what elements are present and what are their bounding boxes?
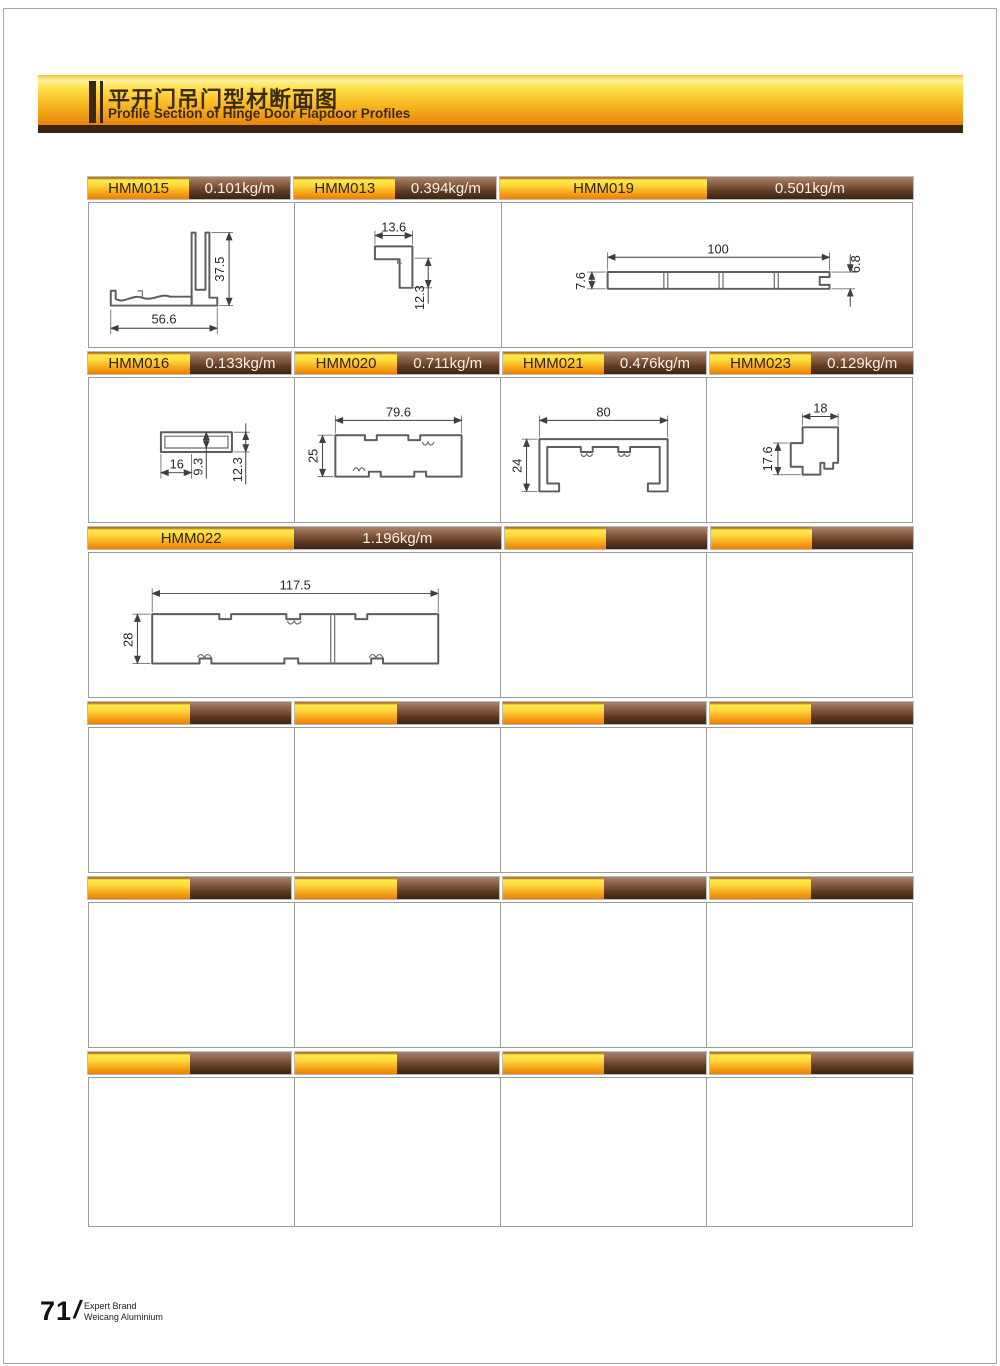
empty-code-segment bbox=[710, 877, 812, 899]
dim-label: 9.3 bbox=[190, 458, 205, 476]
row-1-header: HMM015 0.101kg/m HMM013 0.394kg/m HMM019… bbox=[88, 177, 913, 199]
empty-weight-segment bbox=[604, 1052, 706, 1074]
profile-drawing-hmm022: 117.5 28 bbox=[89, 553, 500, 697]
empty-cell bbox=[500, 552, 707, 698]
brand-line-2: Weicang Aluminium bbox=[84, 1312, 163, 1323]
profile-cell-hmm015: 56.6 37.5 bbox=[88, 202, 295, 348]
empty-header bbox=[88, 702, 291, 724]
profile-drawing-hmm015: 56.6 37.5 bbox=[89, 203, 294, 347]
empty-header bbox=[295, 877, 498, 899]
empty-weight-segment bbox=[397, 877, 499, 899]
profile-weight: 0.129kg/m bbox=[827, 356, 897, 371]
empty-code-segment bbox=[88, 1052, 190, 1074]
empty-header bbox=[88, 877, 291, 899]
profile-header-hmm020: HMM020 0.711kg/m bbox=[295, 352, 498, 374]
empty-header bbox=[295, 1052, 498, 1074]
empty-weight-segment bbox=[190, 702, 292, 724]
brand-line-1: Expert Brand bbox=[84, 1301, 163, 1312]
dim-label: 7.6 bbox=[572, 272, 587, 290]
row-3-header: HMM022 1.196kg/m bbox=[88, 527, 913, 549]
profile-header-hmm019: HMM019 0.501kg/m bbox=[500, 177, 913, 199]
profile-header-hmm023: HMM023 0.129kg/m bbox=[710, 352, 913, 374]
profile-code-segment: HMM015 bbox=[88, 177, 189, 199]
dim-label: 37.5 bbox=[212, 257, 227, 282]
empty-cell bbox=[500, 1077, 707, 1227]
profile-code-segment: HMM020 bbox=[295, 352, 397, 374]
profile-weight: 0.501kg/m bbox=[775, 181, 845, 196]
dim-label: 56.6 bbox=[152, 311, 177, 326]
profile-cell-hmm013: 13.6 12.3 bbox=[294, 202, 501, 348]
accent-bar-thin bbox=[100, 81, 103, 123]
empty-weight-segment bbox=[604, 877, 706, 899]
page-number: 71 bbox=[40, 1298, 72, 1325]
dim-label: 24 bbox=[510, 459, 525, 473]
profile-cell-hmm023: 18 17.6 bbox=[706, 377, 913, 523]
empty-cell bbox=[500, 727, 707, 873]
profile-drawing-hmm016: 16 9.3 12.3 bbox=[89, 378, 294, 522]
profile-header-hmm022: HMM022 1.196kg/m bbox=[88, 527, 501, 549]
profile-drawing-hmm019: 100 7.6 6.8 bbox=[502, 203, 913, 347]
profile-cell-hmm016: 16 9.3 12.3 bbox=[88, 377, 295, 523]
dim-label: 80 bbox=[596, 404, 610, 419]
profile-code-segment: HMM021 bbox=[503, 352, 605, 374]
profile-header-hmm021: HMM021 0.476kg/m bbox=[503, 352, 706, 374]
profile-code: HMM023 bbox=[730, 356, 791, 371]
empty-code-segment bbox=[710, 1052, 812, 1074]
profile-cell-hmm019: 100 7.6 6.8 bbox=[501, 202, 914, 348]
profile-code-segment: HMM019 bbox=[500, 177, 706, 199]
row-6-cells bbox=[88, 1077, 913, 1227]
empty-code-segment bbox=[505, 527, 606, 549]
profile-code: HMM022 bbox=[161, 531, 222, 546]
empty-code-segment bbox=[295, 1052, 397, 1074]
empty-header bbox=[505, 527, 707, 549]
profile-drawing-hmm021: 80 24 bbox=[501, 378, 706, 522]
profile-code: HMM013 bbox=[314, 181, 375, 196]
empty-header bbox=[503, 702, 706, 724]
profile-weight-segment: 0.501kg/m bbox=[707, 177, 913, 199]
empty-header bbox=[88, 1052, 291, 1074]
empty-weight-segment bbox=[604, 702, 706, 724]
empty-weight-segment bbox=[606, 527, 707, 549]
empty-cell bbox=[706, 902, 913, 1048]
empty-cell bbox=[500, 902, 707, 1048]
empty-code-segment bbox=[503, 1052, 605, 1074]
dim-label: 25 bbox=[306, 449, 321, 463]
page-title-english: Profile Section of Hinge Door Flapdoor P… bbox=[108, 106, 410, 121]
profile-code-segment: HMM016 bbox=[88, 352, 190, 374]
profile-cell-hmm020: 79.6 25 bbox=[294, 377, 501, 523]
profile-header-hmm013: HMM013 0.394kg/m bbox=[294, 177, 496, 199]
empty-cell bbox=[294, 727, 501, 873]
profile-header-hmm015: HMM015 0.101kg/m bbox=[88, 177, 290, 199]
row-3-cells: 117.5 28 bbox=[88, 552, 913, 698]
profile-code: HMM021 bbox=[523, 356, 584, 371]
profile-code-segment: HMM022 bbox=[88, 527, 294, 549]
empty-weight-segment bbox=[397, 702, 499, 724]
dim-label: 79.6 bbox=[386, 404, 411, 419]
row-5-cells bbox=[88, 902, 913, 1048]
page-footer: 71 / Expert Brand Weicang Aluminium bbox=[40, 1298, 163, 1325]
profile-weight-segment: 0.129kg/m bbox=[811, 352, 913, 374]
dim-label: 16 bbox=[170, 457, 184, 472]
profile-code-segment: HMM013 bbox=[294, 177, 395, 199]
dim-label: 6.8 bbox=[848, 255, 863, 273]
profile-weight-segment: 0.476kg/m bbox=[604, 352, 706, 374]
empty-code-segment bbox=[503, 702, 605, 724]
profile-code: HMM016 bbox=[108, 356, 169, 371]
profile-drawing-hmm013: 13.6 12.3 bbox=[295, 203, 500, 347]
empty-header bbox=[503, 877, 706, 899]
row-2-cells: 16 9.3 12.3 79.6 25 80 bbox=[88, 377, 913, 523]
profile-cell-hmm021: 80 24 bbox=[500, 377, 707, 523]
dim-label: 117.5 bbox=[280, 577, 311, 592]
profile-code-segment: HMM023 bbox=[710, 352, 812, 374]
empty-header bbox=[503, 1052, 706, 1074]
title-banner-underline bbox=[38, 125, 963, 133]
empty-weight-segment bbox=[190, 877, 292, 899]
row-1-cells: 56.6 37.5 13.6 12.3 100 7.6 bbox=[88, 202, 913, 348]
empty-weight-segment bbox=[811, 1052, 913, 1074]
profile-weight-segment: 0.711kg/m bbox=[397, 352, 499, 374]
empty-header bbox=[710, 1052, 913, 1074]
empty-cell bbox=[706, 552, 913, 698]
row-2-header: HMM016 0.133kg/m HMM020 0.711kg/m HMM021… bbox=[88, 352, 913, 374]
empty-code-segment bbox=[710, 702, 812, 724]
profile-weight-segment: 0.133kg/m bbox=[190, 352, 292, 374]
accent-bar-thick bbox=[89, 81, 96, 123]
empty-weight-segment bbox=[811, 702, 913, 724]
profile-header-hmm016: HMM016 0.133kg/m bbox=[88, 352, 291, 374]
row-5-header bbox=[88, 877, 913, 899]
empty-header bbox=[710, 702, 913, 724]
dim-label: 12.3 bbox=[413, 285, 428, 310]
empty-weight-segment bbox=[812, 527, 913, 549]
empty-header bbox=[711, 527, 913, 549]
dim-label: 18 bbox=[813, 401, 827, 416]
catalog-page: { "header": { "title_zh": "平开门吊门型材断面图", … bbox=[0, 0, 1000, 1366]
empty-cell bbox=[294, 1077, 501, 1227]
dim-label: 100 bbox=[707, 241, 728, 256]
empty-code-segment bbox=[503, 877, 605, 899]
empty-header bbox=[295, 702, 498, 724]
profile-weight-segment: 0.101kg/m bbox=[189, 177, 290, 199]
profile-code: HMM015 bbox=[108, 181, 169, 196]
profile-drawing-hmm023: 18 17.6 bbox=[707, 378, 912, 522]
profile-weight-segment: 0.394kg/m bbox=[395, 177, 496, 199]
profile-weight: 0.133kg/m bbox=[205, 356, 275, 371]
empty-code-segment bbox=[295, 702, 397, 724]
empty-weight-segment bbox=[397, 1052, 499, 1074]
empty-cell bbox=[88, 902, 295, 1048]
profile-weight: 0.711kg/m bbox=[413, 356, 482, 371]
empty-cell bbox=[88, 1077, 295, 1227]
empty-cell bbox=[706, 1077, 913, 1227]
empty-code-segment bbox=[88, 877, 190, 899]
empty-header bbox=[710, 877, 913, 899]
empty-weight-segment bbox=[811, 877, 913, 899]
empty-code-segment bbox=[295, 877, 397, 899]
brand-block: Expert Brand Weicang Aluminium bbox=[84, 1298, 163, 1324]
empty-code-segment bbox=[711, 527, 812, 549]
empty-cell bbox=[88, 727, 295, 873]
profile-weight: 1.196kg/m bbox=[362, 531, 432, 546]
row-6-header bbox=[88, 1052, 913, 1074]
profile-cell-hmm022: 117.5 28 bbox=[88, 552, 501, 698]
profile-weight: 0.101kg/m bbox=[205, 181, 275, 196]
profile-code: HMM019 bbox=[573, 181, 634, 196]
profile-code: HMM020 bbox=[316, 356, 377, 371]
empty-code-segment bbox=[88, 702, 190, 724]
dim-label: 17.6 bbox=[760, 446, 775, 471]
footer-slash: / bbox=[71, 1298, 83, 1323]
profile-weight: 0.476kg/m bbox=[620, 356, 690, 371]
empty-weight-segment bbox=[190, 1052, 292, 1074]
empty-cell bbox=[294, 902, 501, 1048]
profile-weight-segment: 1.196kg/m bbox=[294, 527, 500, 549]
row-4-cells bbox=[88, 727, 913, 873]
profile-weight: 0.394kg/m bbox=[411, 181, 481, 196]
empty-cell bbox=[706, 727, 913, 873]
dim-label: 28 bbox=[120, 633, 135, 647]
profile-drawing-hmm020: 79.6 25 bbox=[295, 378, 500, 522]
dim-label: 12.3 bbox=[230, 457, 245, 482]
dim-label: 13.6 bbox=[381, 220, 406, 235]
row-4-header bbox=[88, 702, 913, 724]
